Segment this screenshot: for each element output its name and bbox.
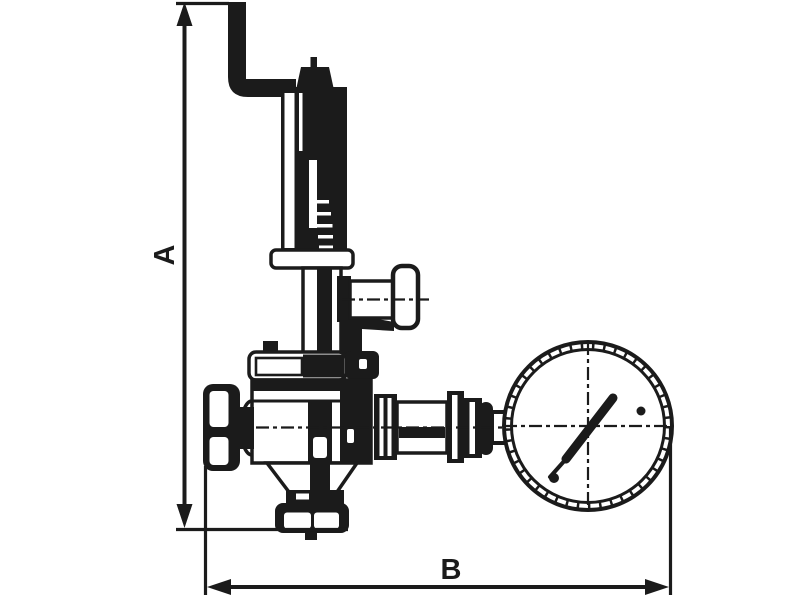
valve-neck <box>263 268 341 354</box>
dimension-a-label: A <box>149 244 181 265</box>
dim-b-arrow-right <box>645 579 669 595</box>
dim-a-arrow-up <box>177 2 193 26</box>
spindle <box>317 268 332 354</box>
inlet-knob <box>203 384 254 471</box>
gauge-set-pin <box>637 407 646 416</box>
dimension-b-label: B <box>441 554 462 586</box>
vent-pipe <box>228 2 296 97</box>
upper-body-flange <box>249 351 379 380</box>
bonnet-flange <box>271 250 353 268</box>
side-branch <box>337 266 418 354</box>
dim-a-arrow-down <box>177 504 193 528</box>
valve-technical-drawing: A B <box>0 0 800 598</box>
needle-counterweight <box>549 473 559 483</box>
handwheel <box>393 266 418 328</box>
dim-b-arrow-left <box>207 579 231 595</box>
adjusting-cap <box>296 67 334 90</box>
outlet-spigot <box>305 533 317 540</box>
pressure-gauge <box>504 342 672 510</box>
spring-rod-gap <box>309 160 317 228</box>
drawing-canvas: A B <box>0 0 800 598</box>
valve-body <box>241 379 372 463</box>
